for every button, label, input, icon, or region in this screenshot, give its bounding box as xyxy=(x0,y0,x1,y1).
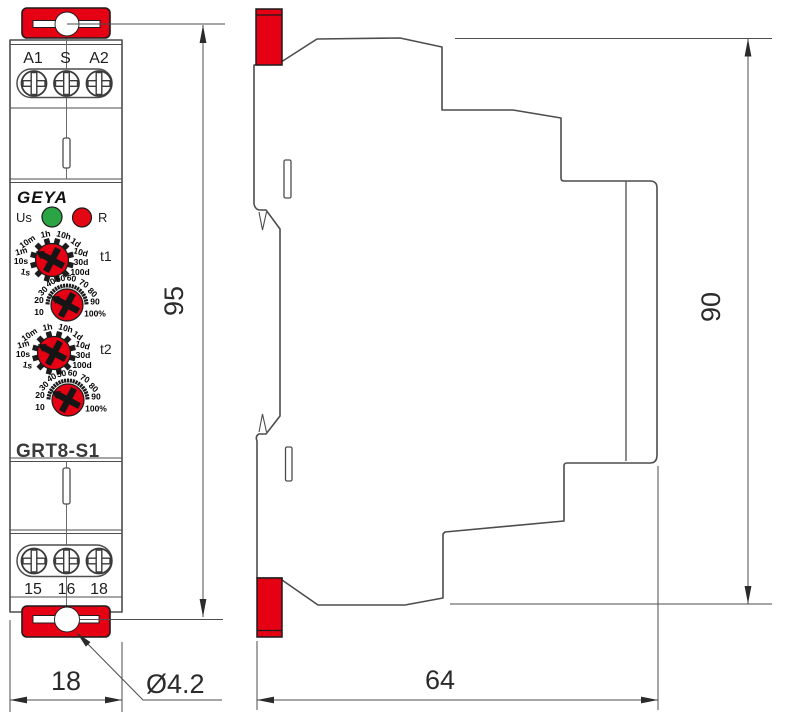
front-top-clip xyxy=(22,8,110,38)
side-slot-bottom xyxy=(286,447,293,481)
terminal-label-15: 15 xyxy=(24,581,42,598)
terminal-label-16: 16 xyxy=(58,581,76,598)
dim-side-depth: 64 xyxy=(425,665,455,695)
side-latch-details xyxy=(259,212,267,432)
marker-slot-top xyxy=(63,138,70,168)
screw-s xyxy=(54,71,79,96)
side-view xyxy=(254,9,657,637)
bottom-mount-hole xyxy=(55,607,80,632)
led-us-label: Us xyxy=(16,210,32,225)
screw-a2 xyxy=(87,71,112,96)
terminal-label-a2: A2 xyxy=(89,50,109,67)
model-label: GRT8-S1 xyxy=(16,441,100,462)
side-bottom-clip xyxy=(257,578,282,637)
screw-16 xyxy=(54,549,79,574)
dial-t1-label: t1 xyxy=(100,248,112,264)
terminal-label-s: S xyxy=(60,50,71,67)
technical-drawing-canvas: 1h 10h 10m 1d 1m 10d 10s 30d 1s 100d 40 … xyxy=(0,0,790,718)
marker-slot-bottom xyxy=(63,468,70,504)
terminal-label-a1: A1 xyxy=(23,50,43,67)
relay-dimension-drawing: 1h 10h 10m 1d 1m 10d 10s 30d 1s 100d 40 … xyxy=(0,0,790,718)
screw-18 xyxy=(87,549,112,574)
screw-a1 xyxy=(22,71,47,96)
terminal-label-18: 18 xyxy=(90,581,108,598)
dim-side-height: 90 xyxy=(696,292,726,322)
brand-logo: GEYA xyxy=(17,188,68,207)
front-bottom-clip xyxy=(22,606,110,637)
dial-t2-label: t2 xyxy=(100,341,112,357)
led-r-red xyxy=(73,208,92,227)
front-view: A1 S A2 15 16 18 GEYA GRT8-S1 Us R t1 t2 xyxy=(10,8,122,637)
dim-mount-hole: Ø4.2 xyxy=(146,669,205,699)
led-r-label: R xyxy=(98,210,107,225)
side-top-clip xyxy=(256,9,282,65)
side-profile-outline xyxy=(254,38,657,605)
dim-front-width: 18 xyxy=(51,666,81,696)
screw-15 xyxy=(22,549,47,574)
led-us-green xyxy=(42,207,62,227)
side-slot-top xyxy=(284,160,291,198)
dim-front-height: 95 xyxy=(159,286,189,316)
